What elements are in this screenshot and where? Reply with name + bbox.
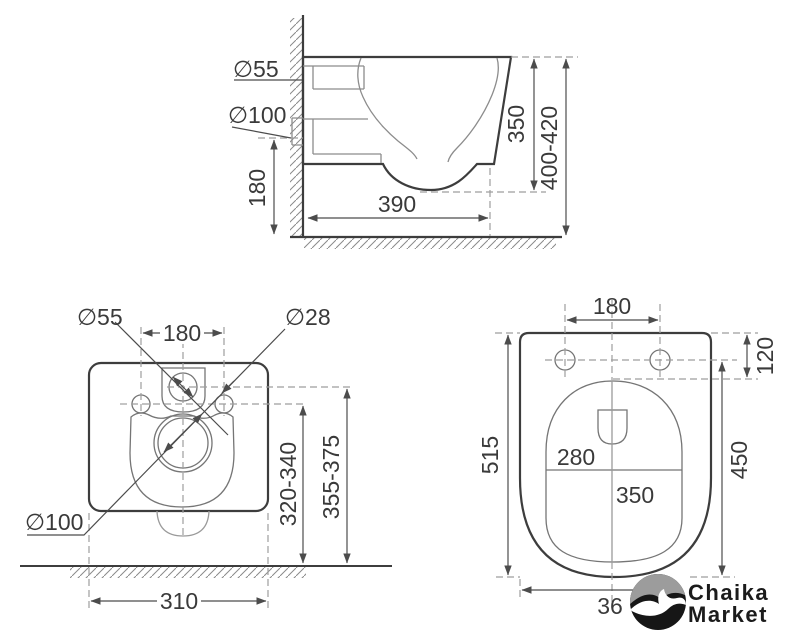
technical-drawing: ∅55 ∅100 390 180 350 400-420 [0,0,792,640]
brand-logo: Chaika Market [628,572,769,630]
leader-outlet-dia [232,127,291,138]
toilet-side-inner [292,58,498,163]
label-seat-offset: 120 [752,337,778,375]
plan-view: 180 120 515 450 280 350 36 [477,293,778,619]
bowl-opening [546,381,682,562]
label-bottom-width: 36 [597,593,623,619]
label-rear-outlet-dia: ∅100 [25,509,83,535]
arrow-drain-b [164,433,183,452]
label-body-width: 310 [160,588,198,614]
label-bolt-dia: ∅28 [285,304,331,330]
logo-text-line2: Market [688,602,768,627]
label-rear-inlet-dia: ∅55 [77,304,123,330]
label-inlet-dia: ∅55 [233,56,279,82]
label-bowl-depth: 350 [616,482,654,508]
side-view: ∅55 ∅100 390 180 350 400-420 [228,15,578,249]
label-bowl-width: 280 [557,444,595,470]
label-outlet-dia: ∅100 [228,102,286,128]
side-dim-labels: ∅55 ∅100 390 180 350 400-420 [228,56,562,217]
rear-view: 180 ∅55 ∅28 ∅100 320-340 355-375 310 [20,304,392,614]
label-outlet-height: 180 [244,169,270,207]
label-seat-spacing: 180 [593,293,631,319]
plan-dim-labels: 180 120 515 450 280 350 36 [477,293,778,619]
label-inlet-height: 355-375 [318,435,344,519]
side-dashed [258,57,578,236]
bowl-rim-curve [448,58,498,162]
inlet-duct [303,66,364,89]
bowl-trap-curve [358,58,417,159]
label-depth: 390 [378,191,416,217]
drawing-canvas: ∅55 ∅100 390 180 350 400-420 [0,0,792,640]
label-hole-spacing: 180 [163,320,201,346]
label-body-height: 350 [503,105,529,143]
outlet-duct [303,119,381,163]
label-mount-height: 400-420 [536,106,562,190]
label-front-length: 450 [726,441,752,479]
label-total-length: 515 [477,436,503,474]
label-bolt-height: 320-340 [275,442,301,526]
rear-floor-hatch [70,566,306,578]
mounting-plate [130,413,234,507]
toilet-side-outline [303,57,511,190]
floor-hatch [304,237,556,249]
